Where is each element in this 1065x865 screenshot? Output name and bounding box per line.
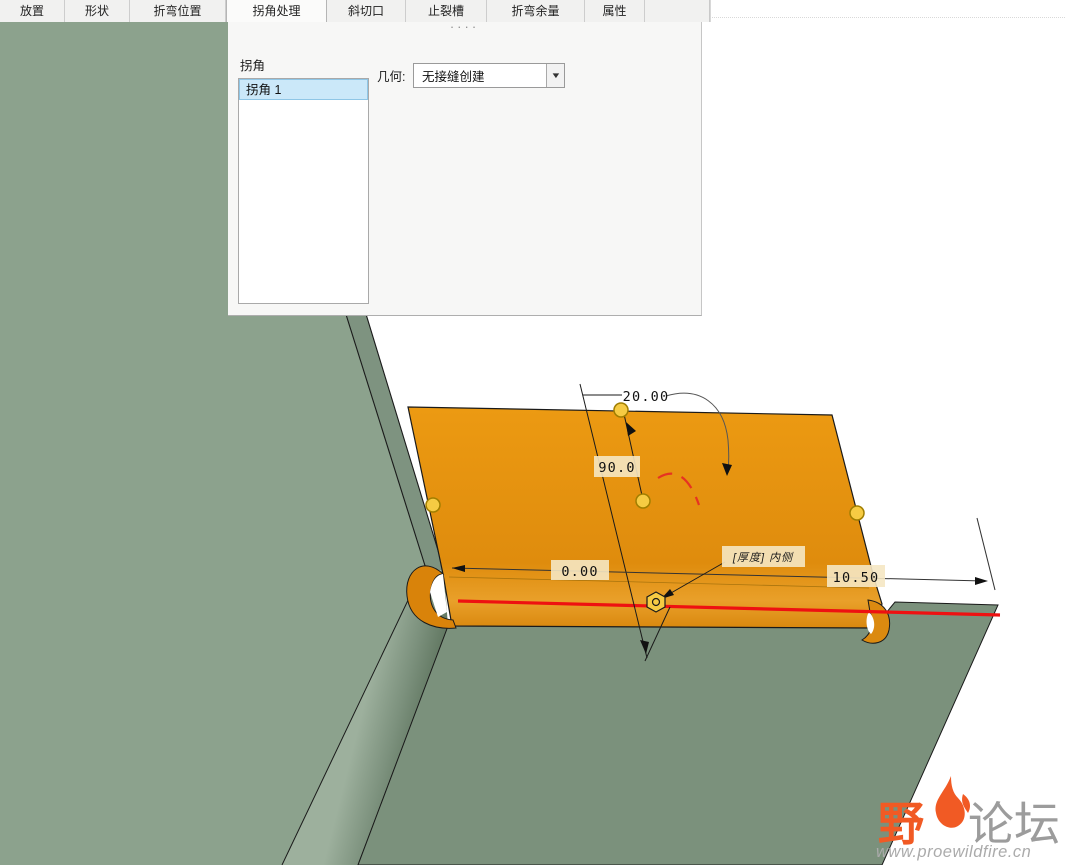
geometry-dropdown[interactable]: 无接缝创建 ▼ <box>413 63 565 88</box>
tab-bend-position[interactable]: 折弯位置 <box>130 0 226 22</box>
flange-face[interactable] <box>408 407 882 628</box>
svg-text:90.0: 90.0 <box>598 460 635 476</box>
handle-right-edge[interactable] <box>850 506 864 520</box>
dropdown-button[interactable]: ▼ <box>546 64 564 87</box>
corner-list[interactable]: 拐角 1 <box>238 78 369 304</box>
tab-bend-allowance[interactable]: 折弯余量 <box>487 0 585 22</box>
tab-corner-treatment[interactable]: 拐角处理 <box>226 0 327 22</box>
feature-tab-bar: 放置 形状 折弯位置 拐角处理 斜切口 止裂槽 折弯余量 属性 <box>0 0 711 22</box>
tab-miter-cut[interactable]: 斜切口 <box>327 0 406 22</box>
panel-drag-handle[interactable]: ···· <box>450 22 479 32</box>
dim-edge-distance-value[interactable]: 10.50 <box>827 565 885 587</box>
svg-text:10.50: 10.50 <box>833 570 880 586</box>
corner-treatment-panel: ···· 拐角 拐角 1 几何: 无接缝创建 ▼ <box>228 22 702 316</box>
dim-offset-value[interactable]: 0.00 <box>551 560 609 580</box>
thickness-side-label: [厚度] 内侧 <box>722 546 805 567</box>
handle-angle-center[interactable] <box>636 494 650 508</box>
corner-section-label: 拐角 <box>240 55 265 74</box>
handle-left-edge[interactable] <box>426 498 440 512</box>
dim-angle-value[interactable]: 90.0 <box>594 456 640 477</box>
app-window: { "tabs": ["放置", "形状", "折弯位置", "拐角处理", "… <box>0 0 1065 865</box>
chevron-down-icon: ▼ <box>550 71 561 80</box>
tab-shape[interactable]: 形状 <box>65 0 130 22</box>
tab-bar-filler <box>645 0 710 22</box>
tab-relief[interactable]: 止裂槽 <box>406 0 487 22</box>
geometry-label: 几何: <box>377 66 405 85</box>
tab-bar-underline <box>710 17 1065 18</box>
corner-list-item[interactable]: 拐角 1 <box>239 79 368 100</box>
tab-placement[interactable]: 放置 <box>0 0 65 22</box>
handle-top-edge[interactable] <box>614 403 628 417</box>
bend-line-handle[interactable] <box>647 592 665 612</box>
svg-text:[厚度] 内侧: [厚度] 内侧 <box>732 551 794 564</box>
dim-length-value[interactable]: 20.00 <box>623 389 670 405</box>
watermark-url: www.proewildfire.cn <box>876 843 1031 861</box>
geometry-selected-value: 无接缝创建 <box>414 66 546 85</box>
svg-text:0.00: 0.00 <box>561 564 598 580</box>
tab-properties[interactable]: 属性 <box>585 0 645 22</box>
